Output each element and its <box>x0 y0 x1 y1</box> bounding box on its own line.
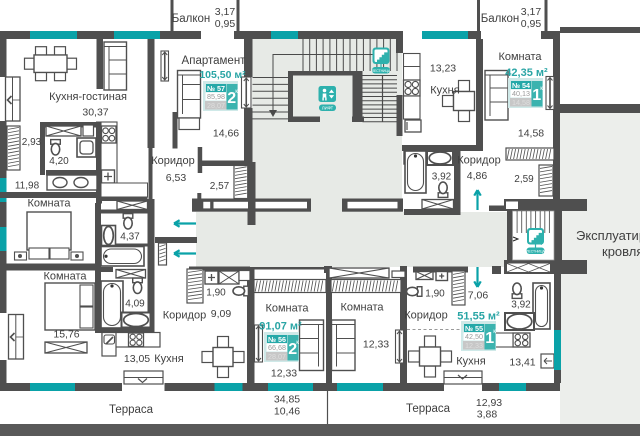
svg-text:Кухня: Кухня <box>430 85 459 97</box>
svg-text:2,93: 2,93 <box>22 137 42 148</box>
svg-text:15,76: 15,76 <box>53 329 79 341</box>
svg-text:14,66: 14,66 <box>213 128 239 140</box>
svg-text:1,90: 1,90 <box>206 288 226 299</box>
svg-text:Коридор: Коридор <box>151 155 194 167</box>
svg-text:7,06: 7,06 <box>468 290 489 302</box>
svg-text:12,33: 12,33 <box>363 339 389 351</box>
svg-text:Комната: Комната <box>27 198 71 210</box>
svg-text:Коридор: Коридор <box>404 310 447 322</box>
svg-text:34,85: 34,85 <box>274 394 300 406</box>
svg-text:4,37: 4,37 <box>120 232 140 243</box>
svg-text:3,17: 3,17 <box>215 6 236 18</box>
svg-text:3,92: 3,92 <box>511 300 531 311</box>
svg-text:ЛИФТ: ЛИФТ <box>322 106 334 111</box>
svg-text:Кухня: Кухня <box>456 356 485 368</box>
svg-text:28,07: 28,07 <box>268 352 286 361</box>
svg-text:ЛЕСТНИЦА: ЛЕСТНИЦА <box>372 69 391 73</box>
svg-text:2,57: 2,57 <box>210 181 230 192</box>
svg-text:12,33: 12,33 <box>271 368 297 380</box>
svg-text:12,33: 12,33 <box>465 341 483 350</box>
svg-text:Кухня-гостиная: Кухня-гостиная <box>49 91 127 103</box>
svg-text:42,35 м²: 42,35 м² <box>505 67 548 79</box>
svg-text:3,92: 3,92 <box>432 172 452 183</box>
svg-text:кровля: кровля <box>602 244 640 259</box>
svg-text:0,95: 0,95 <box>521 18 542 30</box>
svg-text:Коридор: Коридор <box>457 155 500 167</box>
svg-text:к: к <box>296 340 299 346</box>
svg-text:к: к <box>493 329 496 335</box>
svg-text:13,41: 13,41 <box>509 357 535 369</box>
svg-text:11,98: 11,98 <box>15 181 40 192</box>
svg-text:6,53: 6,53 <box>166 172 187 184</box>
svg-text:14,58: 14,58 <box>512 98 530 107</box>
svg-text:Комната: Комната <box>43 271 87 283</box>
svg-text:ЛЕСТНИЦА: ЛЕСТНИЦА <box>526 250 545 254</box>
svg-text:28,07: 28,07 <box>207 101 225 110</box>
svg-text:4,20: 4,20 <box>49 156 69 167</box>
svg-text:13,05: 13,05 <box>124 353 150 365</box>
svg-text:51,55 м²: 51,55 м² <box>457 311 500 323</box>
svg-text:13,23: 13,23 <box>430 63 456 75</box>
svg-text:3,17: 3,17 <box>521 6 542 18</box>
svg-text:4,09: 4,09 <box>125 299 145 310</box>
svg-text:10,46: 10,46 <box>274 406 300 418</box>
svg-text:Комната: Комната <box>498 51 542 63</box>
svg-text:91,07 м²: 91,07 м² <box>259 321 302 333</box>
svg-text:30,37: 30,37 <box>82 107 108 119</box>
svg-text:Балкон: Балкон <box>172 13 211 25</box>
svg-text:14,58: 14,58 <box>518 128 544 140</box>
svg-text:105,50 м²: 105,50 м² <box>199 69 246 81</box>
svg-text:Апартамент: Апартамент <box>182 55 247 67</box>
svg-text:Терраса: Терраса <box>109 404 154 416</box>
svg-text:Комната: Комната <box>340 302 384 314</box>
svg-text:к: к <box>235 89 238 95</box>
svg-text:Балкон: Балкон <box>481 13 520 25</box>
svg-text:Кухня: Кухня <box>154 353 183 365</box>
svg-text:0,95: 0,95 <box>215 18 236 30</box>
svg-text:1,90: 1,90 <box>425 289 445 300</box>
svg-text:Терраса: Терраса <box>406 403 451 415</box>
svg-text:12,93: 12,93 <box>476 397 502 409</box>
svg-text:9,09: 9,09 <box>211 308 232 320</box>
svg-text:2,59: 2,59 <box>514 174 534 185</box>
svg-text:Эксплуатируемая: Эксплуатируемая <box>576 228 640 243</box>
svg-text:Коридор: Коридор <box>163 310 206 322</box>
svg-text:3,88: 3,88 <box>477 409 498 421</box>
svg-text:к: к <box>540 86 543 92</box>
svg-text:4,86: 4,86 <box>467 170 488 182</box>
svg-text:Комната: Комната <box>265 303 309 315</box>
